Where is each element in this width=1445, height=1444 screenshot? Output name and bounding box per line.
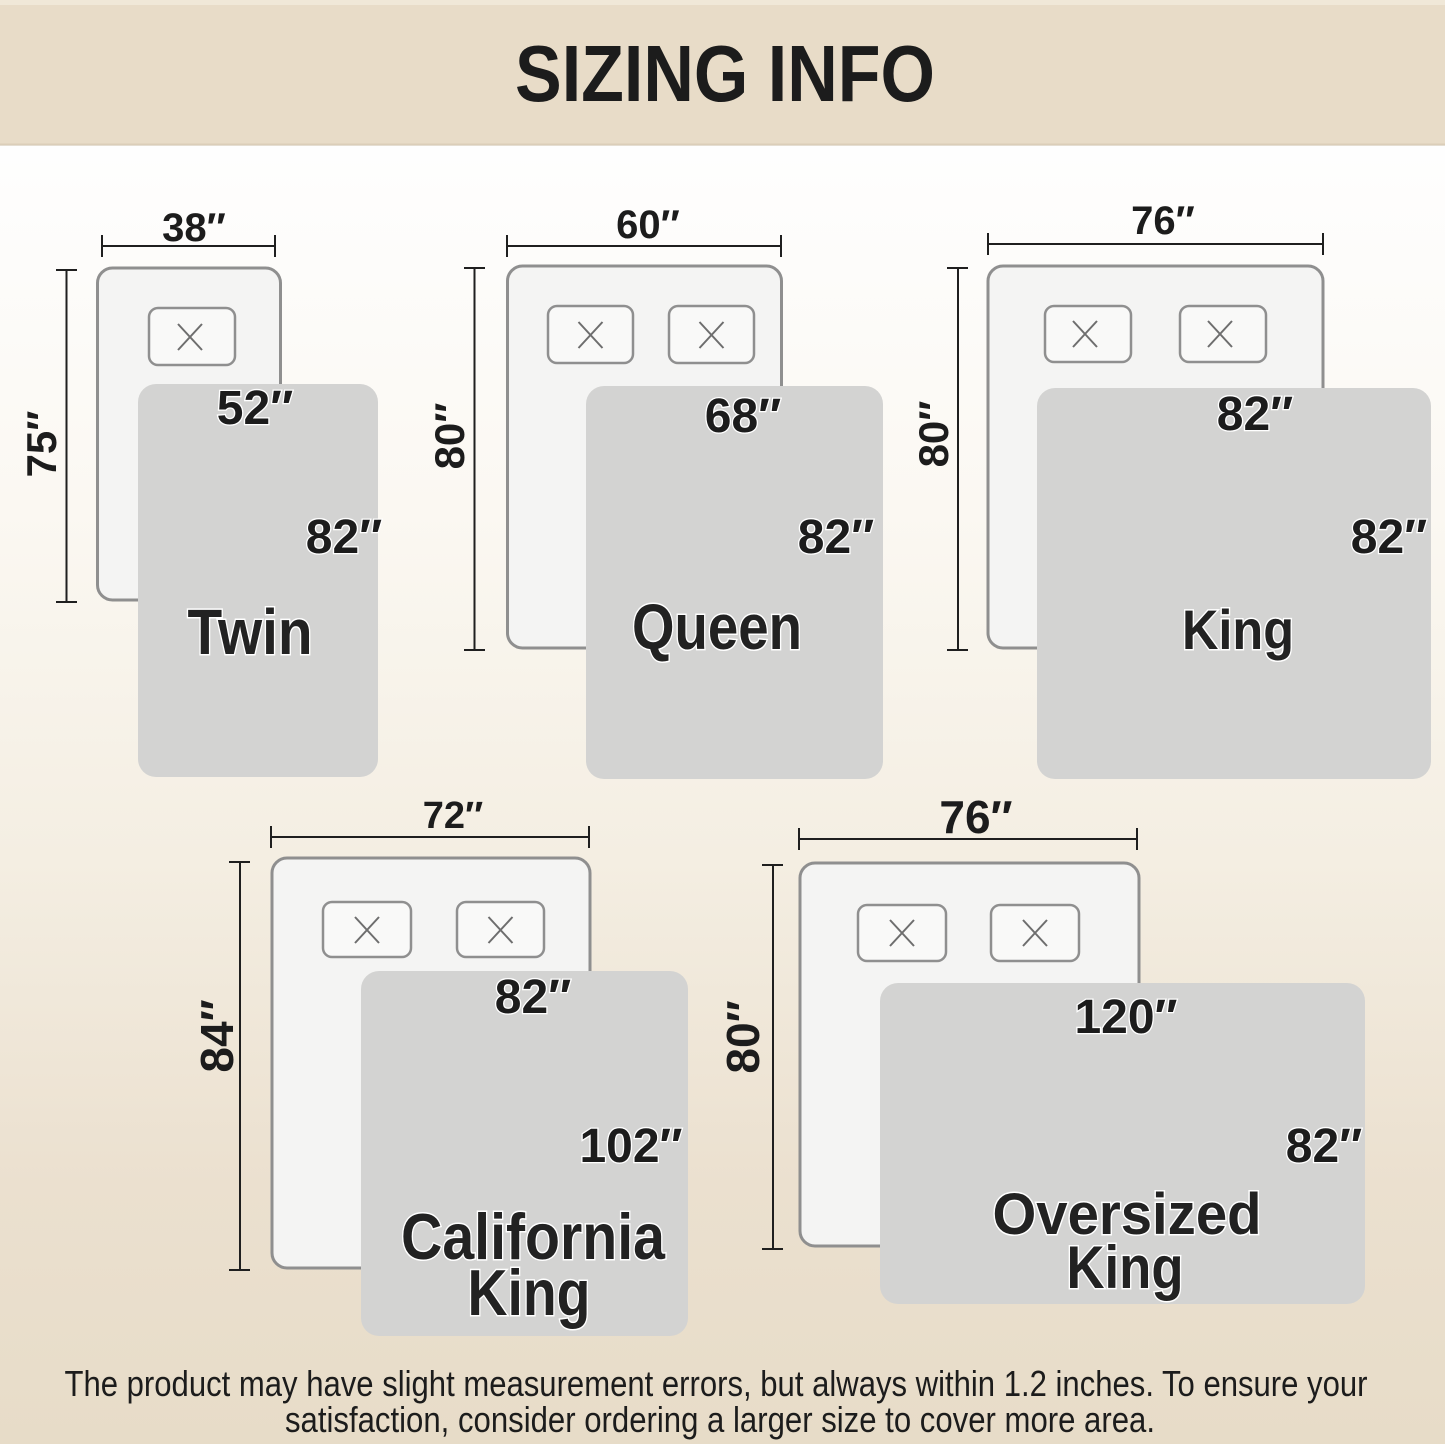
svg-text:84″: 84″ <box>191 999 243 1072</box>
svg-text:60″: 60″ <box>616 203 680 247</box>
svg-text:80″: 80″ <box>910 401 957 468</box>
svg-text:82″: 82″ <box>495 971 571 1024</box>
svg-text:Queen: Queen <box>632 591 802 663</box>
svg-text:76″: 76″ <box>1131 199 1195 243</box>
svg-text:80″: 80″ <box>717 1000 769 1073</box>
svg-text:King: King <box>468 1256 591 1329</box>
svg-text:38″: 38″ <box>162 206 226 250</box>
svg-text:satisfaction, consider orderin: satisfaction, consider ordering a larger… <box>285 1399 1155 1440</box>
svg-text:SIZING INFO: SIZING INFO <box>515 29 935 118</box>
svg-text:76″: 76″ <box>939 791 1012 843</box>
svg-text:68″: 68″ <box>705 390 781 443</box>
svg-text:The product may have slight me: The product may have slight measurement … <box>65 1363 1368 1404</box>
svg-text:King: King <box>1067 1234 1184 1301</box>
svg-text:82″: 82″ <box>1286 1120 1362 1173</box>
svg-text:102″: 102″ <box>579 1120 682 1173</box>
svg-text:82″: 82″ <box>306 511 382 564</box>
svg-text:82″: 82″ <box>798 511 874 564</box>
svg-text:King: King <box>1182 598 1294 661</box>
svg-text:82″: 82″ <box>1351 511 1427 564</box>
svg-text:72″: 72″ <box>423 795 483 837</box>
svg-text:Twin: Twin <box>188 596 313 668</box>
svg-text:75″: 75″ <box>18 411 65 478</box>
svg-text:80″: 80″ <box>426 403 473 470</box>
svg-text:82″: 82″ <box>1217 388 1293 441</box>
svg-text:120″: 120″ <box>1074 991 1177 1044</box>
svg-text:52″: 52″ <box>217 382 293 435</box>
